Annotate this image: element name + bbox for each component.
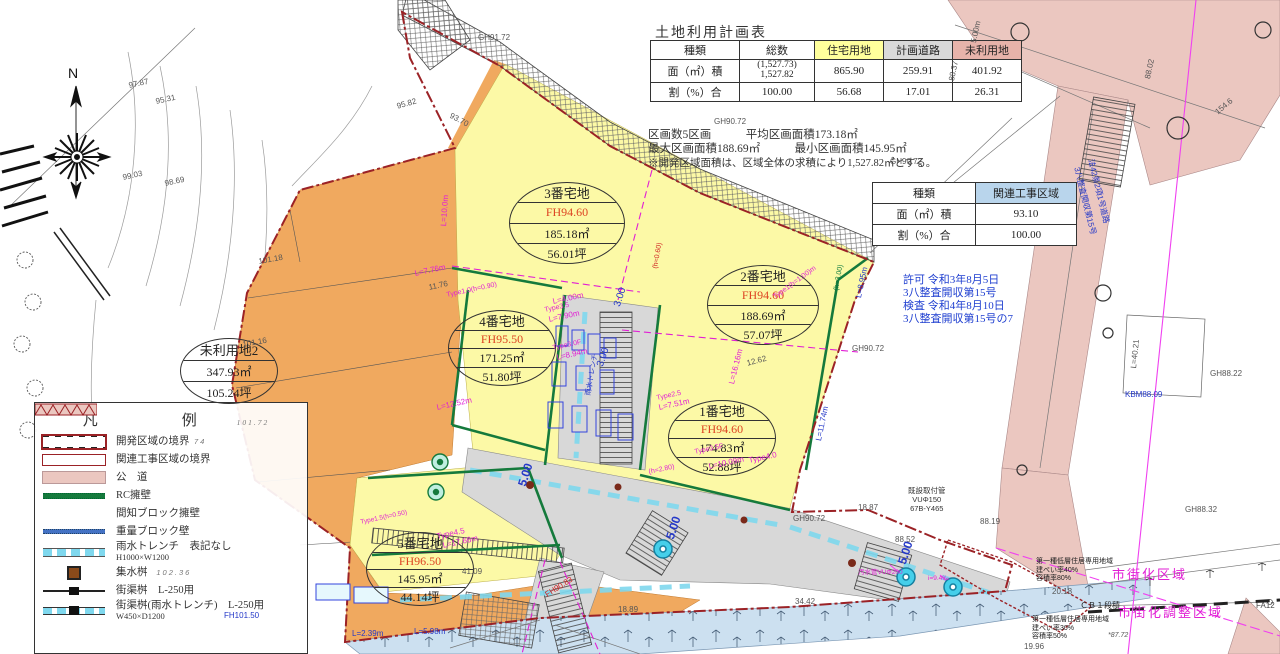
parcel-area: 171.25㎡ xyxy=(449,348,555,366)
unused-land-label: 未利用地2 347.93㎡ 105.24坪 xyxy=(180,338,278,404)
survey-point-label: FA12 xyxy=(1256,602,1275,610)
col-header-residential: 住宅用地 xyxy=(815,41,884,60)
parcel-fh: FH94.60 xyxy=(708,285,818,305)
zoning-lower-text: 第一種低層住居専用地域建ぺい率30%容積率50% xyxy=(1032,616,1109,642)
legend-item: 集水桝 102.36 xyxy=(41,565,301,580)
related-boundary-swatch xyxy=(41,454,107,466)
benchmark-label: KBM88.09 xyxy=(1125,391,1162,399)
rc-wall-swatch xyxy=(41,493,107,499)
slope-label: i=9.4‰ xyxy=(928,576,949,583)
col-header: 総数 xyxy=(740,41,815,60)
legend-item: 街渠桝 L-250用 xyxy=(41,583,301,598)
unused-ratio: 26.31 xyxy=(953,82,1022,101)
dimension-label: 18.89 xyxy=(618,606,638,614)
dimension-label: 20.18 xyxy=(1052,588,1072,596)
type-label: 種類 xyxy=(873,183,976,204)
zoning-upper-text: 第一種低層住居専用地域建ぺい率40%容積率80% xyxy=(1036,558,1113,584)
parcel-4-label: 4番宅地 FH95.50 171.25㎡ 51.80坪 xyxy=(448,310,556,386)
cb-wall-note: ＣＢ１段積 xyxy=(1080,602,1120,610)
dimension-label: 34.42 xyxy=(795,598,815,606)
legend-box: 凡 例 101.72 開発区域の境界 74 関連工事区域の境界 公 道 RC擁壁… xyxy=(34,402,308,654)
spot-elevation: *87.72 xyxy=(1108,632,1128,639)
elevation-label: GH90.72 xyxy=(714,118,746,126)
elevation-label: GH91.72 xyxy=(478,34,510,42)
existing-wall-marks xyxy=(0,146,110,300)
dimension-label: 41.09 xyxy=(462,568,482,576)
total-area-cell: (1,527.73) 1,527.82 xyxy=(740,60,815,83)
length-label: L=5.98m xyxy=(414,628,445,636)
legend-item: 公 道 xyxy=(41,470,301,485)
area-value: 93.10 xyxy=(976,204,1077,225)
note-line: 区画数5区画 平均区画面積173.18㎡ xyxy=(648,129,858,141)
dimension-label: 19.96 xyxy=(1024,643,1044,651)
area-label: 面（㎡）積 xyxy=(873,204,976,225)
parcel-area: 188.69㎡ xyxy=(708,305,818,325)
elevation-label: GH88.32 xyxy=(1185,506,1217,514)
catch-basin-swatch xyxy=(41,566,107,580)
unused-area: 401.92 xyxy=(953,60,1022,83)
total-ratio: 100.00 xyxy=(740,82,815,101)
dev-boundary-swatch xyxy=(41,434,107,450)
elevation-label: GH90.72 xyxy=(852,345,884,353)
parcel-3-label: 3番宅地 FH94.60 185.18㎡ 56.01坪 xyxy=(509,182,625,264)
site-plan-drawing: N 土地利用計画表 種類 総数 住宅用地 計画道路 未利用地 面（㎡）積 (1,… xyxy=(0,0,1280,654)
land-use-table-title: 土地利用計画表 xyxy=(655,22,767,42)
road-area: 259.91 xyxy=(884,60,953,83)
length-label: L=2.39m xyxy=(352,630,383,638)
permit-line: 許可 令和3年8月5日 xyxy=(903,274,999,286)
permit-line: 3八整査開収第15号 xyxy=(903,287,997,299)
legend-item: 間知ブロック擁壁 xyxy=(41,506,301,521)
elevation-label: GH90.72 xyxy=(793,515,825,523)
legend-item: 雨水トレンチ 表記なしH1000×W1200 xyxy=(41,542,301,562)
north-label: N xyxy=(68,66,78,80)
gutter-basin-swatch xyxy=(41,590,107,592)
legend-label-2line: 雨水トレンチ 表記なしH1000×W1200 xyxy=(116,541,232,563)
elevation-label: 88.19 xyxy=(980,518,1000,526)
public-road-swatch xyxy=(41,471,107,484)
zone-label: 関連工事区域 xyxy=(976,183,1077,204)
permit-line: 3八整査開収第15号の7 xyxy=(903,313,1013,325)
note-line: 最大区画面積188.69㎡ 最小区画面積145.95㎡ xyxy=(648,143,907,155)
sewer-pipe-label: 汚水管VUΦ200 xyxy=(858,570,903,577)
permit-text: 許可 令和3年8月5日3八整査開収第15号検査 令和4年8月10日3八整査開収第… xyxy=(903,274,1013,326)
ratio-value: 100.00 xyxy=(976,225,1077,246)
elevation-label: GH90.72 xyxy=(890,158,922,166)
dimension-label: 18.87 xyxy=(858,504,878,512)
parcel-area: 185.18㎡ xyxy=(510,223,624,243)
parcel-area: 347.93㎡ xyxy=(181,360,277,382)
legend-item: RC擁壁 xyxy=(41,488,301,503)
elevation-label: GH88.22 xyxy=(1210,370,1242,378)
permit-line: 検査 令和4年8月10日 xyxy=(903,300,1005,312)
legend-title-note: 101.72 xyxy=(237,418,270,427)
heavy-block-swatch xyxy=(41,529,107,534)
legend-item: 重量ブロック壁 xyxy=(41,524,301,539)
urbanization-area-label: 市街化区域 xyxy=(1112,564,1187,583)
parcel-fh: FH95.50 xyxy=(449,330,555,348)
legend-item: 街渠桝(雨水トレンチ) L-250用W450×D1200 xyxy=(41,601,301,621)
gutter-trench-swatch xyxy=(41,607,107,615)
urbanization-control-area-label: 市街化調整区域 xyxy=(1118,602,1223,621)
height-label: FH101.50 xyxy=(224,612,259,620)
existing-pipe-note: 既設取付管VUΦ15067B-Y465 xyxy=(908,486,946,513)
legend-stray-note: 102.36 xyxy=(156,568,191,577)
total-area-paren: (1,527.73) xyxy=(757,60,797,70)
residential-area: 865.90 xyxy=(815,60,884,83)
parcel-fh: FH94.60 xyxy=(669,420,775,438)
legend-item: 関連工事区域の境界 xyxy=(41,452,301,467)
row-label: 面（㎡）積 xyxy=(651,60,740,83)
row-label: 割（%）合 xyxy=(651,82,740,101)
north-arrow xyxy=(44,86,110,198)
trench-swatch xyxy=(41,548,107,557)
residential-ratio: 56.68 xyxy=(815,82,884,101)
legend-title-text: 凡 例 xyxy=(83,413,215,429)
col-header-road: 計画道路 xyxy=(884,41,953,60)
legend-item: 開発区域の境界 74 xyxy=(41,434,301,449)
col-header: 種類 xyxy=(651,41,740,60)
parcel-area: 145.95㎡ xyxy=(367,569,473,587)
legend-stray-note: 74 xyxy=(194,437,206,446)
parcel-fh: FH96.50 xyxy=(367,552,473,569)
road-ratio: 17.01 xyxy=(884,82,953,101)
parcel-fh: FH94.60 xyxy=(510,202,624,222)
related-works-table: 種類 関連工事区域 面（㎡）積 93.10 割（%）合 100.00 xyxy=(872,182,1077,246)
total-area: 1,527.82 xyxy=(760,70,793,80)
ratio-label: 割（%）合 xyxy=(873,225,976,246)
land-use-table: 種類 総数 住宅用地 計画道路 未利用地 面（㎡）積 (1,527.73) 1,… xyxy=(650,40,1022,102)
col-header-unused: 未利用地 xyxy=(953,41,1022,60)
